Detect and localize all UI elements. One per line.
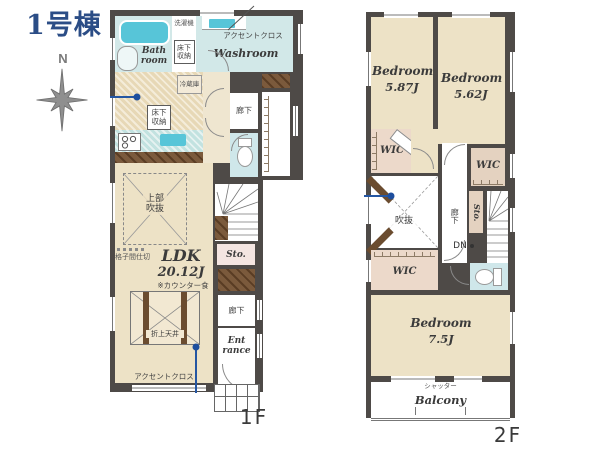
storage-2f-label: Sto. <box>472 199 481 227</box>
stairs-side-closet <box>215 216 228 240</box>
floor1-label: 1F <box>232 406 276 429</box>
bath-washer-area <box>117 46 138 71</box>
window-kitchen-left <box>110 98 115 126</box>
bathtub <box>119 20 170 45</box>
coffered-ceiling-box: 折上天井 <box>130 291 200 345</box>
ldk-accent-cloth-label: アクセントクロス <box>132 373 196 382</box>
kitchen-counter-edge <box>115 152 203 163</box>
wic-upper-left: WIC <box>371 129 411 173</box>
ldk-name: LDK <box>151 247 211 265</box>
counter-note-label: ※カウンター食 <box>153 282 213 291</box>
bedroom-right-name: Bedroom <box>441 72 501 86</box>
bathroom: Bath room <box>115 16 172 72</box>
hall-upper-label: 廊下 <box>230 106 258 115</box>
toilet-2f-door-arc <box>450 266 469 285</box>
toilet-2f-bowl <box>475 269 494 285</box>
wic-lower-left-rail <box>374 252 435 257</box>
stove-burners-icon <box>119 134 140 150</box>
window-void-side <box>366 196 371 224</box>
underfloor-storage-kitchen-box: 床下収納 <box>147 105 171 130</box>
shutter-label: シャッター <box>413 383 468 390</box>
wic-right-rail <box>473 180 503 185</box>
fridge: 冷蔵庫 <box>177 75 202 94</box>
window-ldk-left-2 <box>110 297 115 331</box>
wic-right-label: WIC <box>471 160 505 172</box>
mid-closet <box>218 269 255 291</box>
balcony-rail-tick-1 <box>415 407 416 415</box>
ldk: 上部吹抜 格子間仕切 LDK 20.12J ※カウンター食 折上天井 アクセント… <box>115 163 213 383</box>
window-wic-right-side <box>510 154 515 178</box>
balcony: シャッター Balcony <box>371 382 510 421</box>
window-entrance-right <box>257 334 262 358</box>
void-label: 吹抜 <box>389 216 419 226</box>
entrance-label: Ent rance <box>220 336 253 357</box>
bedroom-main-name: Bedroom <box>401 317 481 331</box>
window-hall-lower-right <box>257 300 262 320</box>
void-room: 吹抜 <box>371 176 438 248</box>
window-bath-left <box>110 38 115 60</box>
washroom-sink <box>208 18 236 29</box>
window-bedroom-left-side <box>366 52 371 86</box>
lattice-partition-label: 格子間仕切 <box>115 253 153 261</box>
compass-rose-icon <box>33 66 91 134</box>
kitchen: 冷蔵庫 床下収納 <box>115 72 203 130</box>
kitchen-counter <box>115 130 203 152</box>
laundry-space: 洗濯機 床下収納 <box>172 16 196 72</box>
plan-notch <box>263 180 303 392</box>
window-stairs-side <box>510 208 515 232</box>
bedroom-main: Bedroom 7.5J <box>371 295 510 376</box>
wic-lower-left-label: WIC <box>371 266 438 278</box>
storage-1f: Sto. <box>217 244 255 265</box>
bedroom-left-name: Bedroom <box>372 65 432 79</box>
entrance: Ent rance <box>218 328 255 364</box>
window-washroom-right <box>298 24 303 54</box>
washroom-accent-cloth-label: アクセントクロス <box>214 32 292 41</box>
window-ldk-left-1 <box>110 183 115 223</box>
hall-upper: 廊下 <box>230 93 258 129</box>
window-wic-lower-side <box>366 260 371 282</box>
bathroom-label: Bath room <box>136 46 172 67</box>
wic-right: WIC <box>471 148 505 186</box>
kitchen-sink <box>160 134 186 146</box>
coffered-ceiling-label: 折上天井 <box>146 330 184 338</box>
floorplan-page: 1号棟 N Bath room 洗濯機 床下収納 アクセントクロス Washro… <box>0 0 600 454</box>
bedroom-left-size: 5.87J <box>372 81 432 94</box>
floor1-plan: Bath room 洗濯機 床下収納 アクセントクロス Washroom 冷蔵庫… <box>110 10 303 392</box>
window-washroom-top <box>200 10 234 16</box>
niche-hanger-rail <box>264 96 269 172</box>
stairs-down-dot <box>470 244 474 248</box>
window-bedroom-left-top <box>384 12 418 18</box>
open-ceiling-label: 上部吹抜 <box>143 194 167 215</box>
window-bedroom-main-side <box>510 312 515 344</box>
stairs-2f-steps-icon <box>487 191 508 263</box>
underfloor-storage-upper-box: 床下収納 <box>174 40 195 64</box>
bedroom-left: Bedroom 5.87J <box>371 17 433 129</box>
fridge-label: 冷蔵庫 <box>178 81 201 88</box>
window-niche-right <box>293 106 298 136</box>
stairs-down-label: DN <box>450 241 470 251</box>
window-bedroom-right-top <box>452 12 490 18</box>
storage-1f-label: Sto. <box>217 250 255 260</box>
storage-2f: Sto. <box>469 191 483 233</box>
toilet-2f <box>470 263 508 290</box>
compass-north-label: N <box>50 52 76 67</box>
hall-lower: 廊下 <box>218 295 255 326</box>
floor2-label: 2F <box>486 424 530 447</box>
balcony-rail-tick-2 <box>465 407 466 415</box>
toilet-2f-tank <box>493 268 502 286</box>
laundry-label: 洗濯機 <box>172 20 196 27</box>
side-niche <box>262 92 290 176</box>
hall-lower-label: 廊下 <box>218 306 255 315</box>
underfloor-storage-kitchen-label: 床下収納 <box>150 109 168 126</box>
floor2-plan: Bedroom 5.87J Bedroom 5.62J WIC 吹抜 廊下 <box>366 12 515 418</box>
bedroom-right: Bedroom 5.62J <box>438 17 505 144</box>
wic-lower-left: WIC <box>371 250 438 290</box>
ldk-size: 20.12J <box>151 266 211 281</box>
stove <box>118 133 141 151</box>
window-bedroom-right-side <box>510 52 515 92</box>
lattice-partition-dots <box>117 248 147 251</box>
hall-2f-label: 廊下 <box>450 201 459 231</box>
underfloor-storage-upper-label: 床下収納 <box>176 44 192 60</box>
upper-closet <box>262 74 290 88</box>
balcony-label: Balcony <box>403 394 478 407</box>
stairs-2f <box>487 191 508 263</box>
bedroom-right-size: 5.62J <box>441 88 501 101</box>
open-ceiling-void-box: 上部吹抜 <box>123 173 187 245</box>
bedroom-main-size: 7.5J <box>401 333 481 346</box>
window-ldk-bottom <box>132 385 206 391</box>
